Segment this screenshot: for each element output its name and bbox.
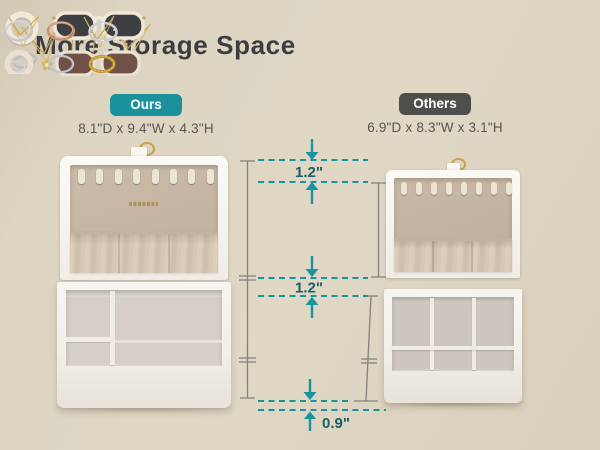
crystal-bangle-icon <box>90 23 117 42</box>
silver-bangle-icon <box>49 56 73 72</box>
pearl-pendant-icon <box>19 36 25 44</box>
necklace-hook <box>431 182 437 195</box>
necklace-hook <box>491 182 497 195</box>
pearl-bracelet-icon <box>8 53 31 75</box>
necklace-hook <box>506 182 512 195</box>
diamond-pendant-icon <box>95 40 99 44</box>
necklace-hook <box>401 182 407 195</box>
pocket-divider <box>432 241 434 272</box>
gold-bracelet-icon <box>90 57 114 72</box>
others-tray-items-graphic <box>0 0 122 74</box>
others-jewelry-box <box>0 0 600 450</box>
tray-divider <box>472 298 476 370</box>
others-tray-lining <box>392 297 514 371</box>
necklace-hook <box>476 182 482 195</box>
pocket-divider <box>471 241 473 272</box>
tray-divider <box>392 346 514 350</box>
others-lid-pocket <box>394 238 512 272</box>
rose-gold-bangle-icon <box>48 22 74 39</box>
tray-divider <box>430 298 434 370</box>
necklace-hook <box>461 182 467 195</box>
silver-cuff-icon <box>6 21 32 41</box>
others-necklaces-graphic <box>0 0 118 94</box>
necklace-hook <box>416 182 422 195</box>
necklace-hook <box>446 182 452 195</box>
comparison-infographic: More Storage Space Ours 8.1"D x 9.4"W x … <box>0 0 600 450</box>
